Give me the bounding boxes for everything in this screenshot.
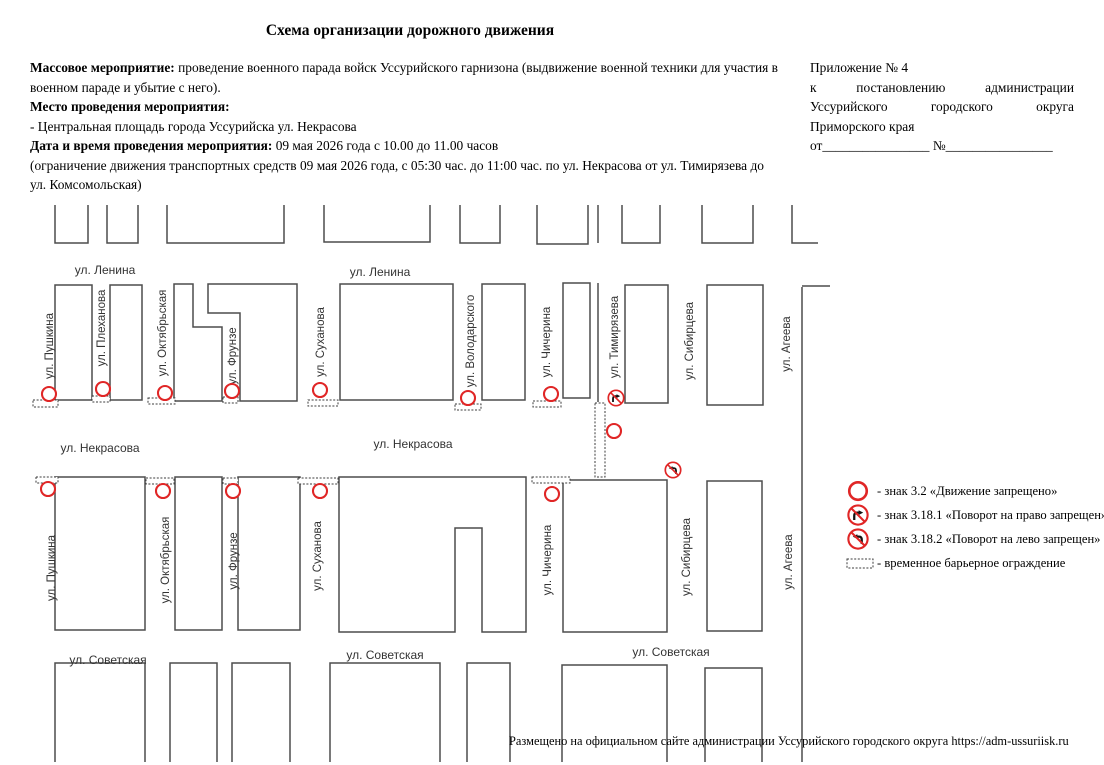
street-label: ул. Фрунзе — [228, 532, 240, 589]
street-label: ул. Ленина — [75, 263, 136, 277]
street-label: ул. Советская — [346, 648, 423, 662]
city-block — [330, 663, 440, 762]
barrier-fence — [146, 478, 174, 484]
city-block — [55, 205, 88, 243]
street-label: ул. Сибирцева — [684, 301, 696, 380]
sign-3.2-icon — [226, 484, 240, 498]
street-label: ул. Володарского — [465, 295, 477, 388]
city-block — [55, 477, 145, 630]
traffic-scheme-map: ул. Ленинаул. Ленинаул. Некрасоваул. Нек… — [0, 0, 1104, 765]
legend-label: - знак 3.18.2 «Поворот на лево запрещен» — [877, 532, 1100, 547]
city-block — [792, 205, 818, 243]
city-block — [467, 663, 510, 762]
sign-3.2-icon — [461, 391, 475, 405]
city-block — [622, 205, 660, 243]
barrier-fence — [595, 403, 605, 477]
street-label: ул. Чичерина — [542, 524, 554, 595]
street-label: ул. Тимирязева — [609, 295, 621, 378]
street-label: ул. Агеева — [781, 316, 793, 372]
city-block — [537, 205, 588, 244]
sign-3.2-icon — [849, 482, 867, 500]
street-label: ул. Сибирцева — [681, 517, 693, 596]
sign-3.2-icon — [225, 384, 239, 398]
city-block — [707, 285, 763, 405]
street-label: ул. Плеханова — [96, 289, 108, 366]
legend-sign-3.18.1-icon — [845, 503, 875, 527]
street-label: ул. Чичерина — [541, 306, 553, 377]
city-block — [482, 284, 525, 400]
street-label: ул. Фрунзе — [227, 327, 239, 384]
street-label: ул. Ленина — [350, 265, 411, 279]
street-label: ул. Советская — [632, 645, 709, 659]
legend-item: - временное барьерное ограждение — [845, 551, 1104, 575]
city-block — [339, 477, 526, 632]
legend-sign-3.2-icon — [845, 479, 875, 503]
street-label: ул. Суханова — [315, 307, 327, 377]
barrier-fence — [533, 401, 561, 407]
barrier-fence — [532, 477, 570, 483]
sign-3.2-icon — [545, 487, 559, 501]
city-block — [170, 663, 217, 762]
legend-item: - знак 3.2 «Движение запрещено» — [845, 479, 1104, 503]
city-block — [175, 477, 222, 630]
city-block — [107, 205, 138, 243]
city-block — [707, 481, 762, 631]
sign-3.2-icon — [156, 484, 170, 498]
sign-3.2-icon — [158, 386, 172, 400]
barrier-fence — [308, 400, 338, 406]
sign-3.2-icon — [96, 382, 110, 396]
city-block — [238, 477, 300, 630]
sign-3.18.2-icon — [665, 462, 680, 477]
legend-item: - знак 3.18.1 «Поворот на право запрещен… — [845, 503, 1104, 527]
city-block — [563, 480, 667, 632]
barrier-fence — [92, 396, 110, 402]
city-block — [174, 284, 222, 401]
sign-3.18.1-icon — [608, 390, 623, 405]
document-page: Схема организации дорожного движения Мас… — [0, 0, 1104, 765]
street-label: ул. Пушкина — [46, 534, 58, 601]
street-label: ул. Агеева — [783, 534, 795, 590]
city-block — [324, 205, 430, 242]
city-block — [55, 285, 92, 400]
sign-3.2-icon — [313, 484, 327, 498]
city-block — [340, 284, 453, 400]
city-block — [110, 285, 142, 400]
legend-item: - знак 3.18.2 «Поворот на лево запрещен» — [845, 527, 1104, 551]
street-label: ул. Октябрьская — [160, 517, 172, 604]
legend-label: - временное барьерное ограждение — [877, 556, 1065, 571]
street-label: ул. Некрасова — [373, 437, 452, 451]
city-block — [167, 205, 284, 243]
street-label: ул. Пушкина — [44, 312, 56, 379]
sign-3.2-icon — [41, 482, 55, 496]
legend-sign-3.18.2-icon — [845, 527, 875, 551]
sign-3.18.1-icon — [848, 505, 867, 524]
sign-3.2-icon — [42, 387, 56, 401]
barrier-fence — [223, 478, 238, 484]
city-block — [625, 285, 668, 403]
sign-3.18.2-icon — [848, 529, 867, 548]
sign-3.2-icon — [607, 424, 621, 438]
street-label: ул. Суханова — [312, 521, 324, 591]
city-block — [460, 205, 500, 243]
map-legend: - знак 3.2 «Движение запрещено»- знак 3.… — [845, 479, 1104, 575]
footer-note: Размещено на официальном сайте администр… — [509, 734, 1069, 749]
city-block — [232, 663, 290, 762]
legend-barrier-icon — [845, 551, 875, 575]
legend-label: - знак 3.2 «Движение запрещено» — [877, 484, 1057, 499]
street-label: ул. Некрасова — [60, 441, 139, 455]
street-label: ул. Советская — [69, 653, 146, 667]
legend-label: - знак 3.18.1 «Поворот на право запрещен… — [877, 508, 1104, 523]
sign-3.2-icon — [313, 383, 327, 397]
street-label: ул. Октябрьская — [157, 290, 169, 377]
city-block — [702, 205, 753, 243]
sign-3.2-icon — [544, 387, 558, 401]
city-block — [563, 283, 590, 398]
city-block — [55, 663, 145, 762]
barrier-fence — [298, 478, 338, 484]
